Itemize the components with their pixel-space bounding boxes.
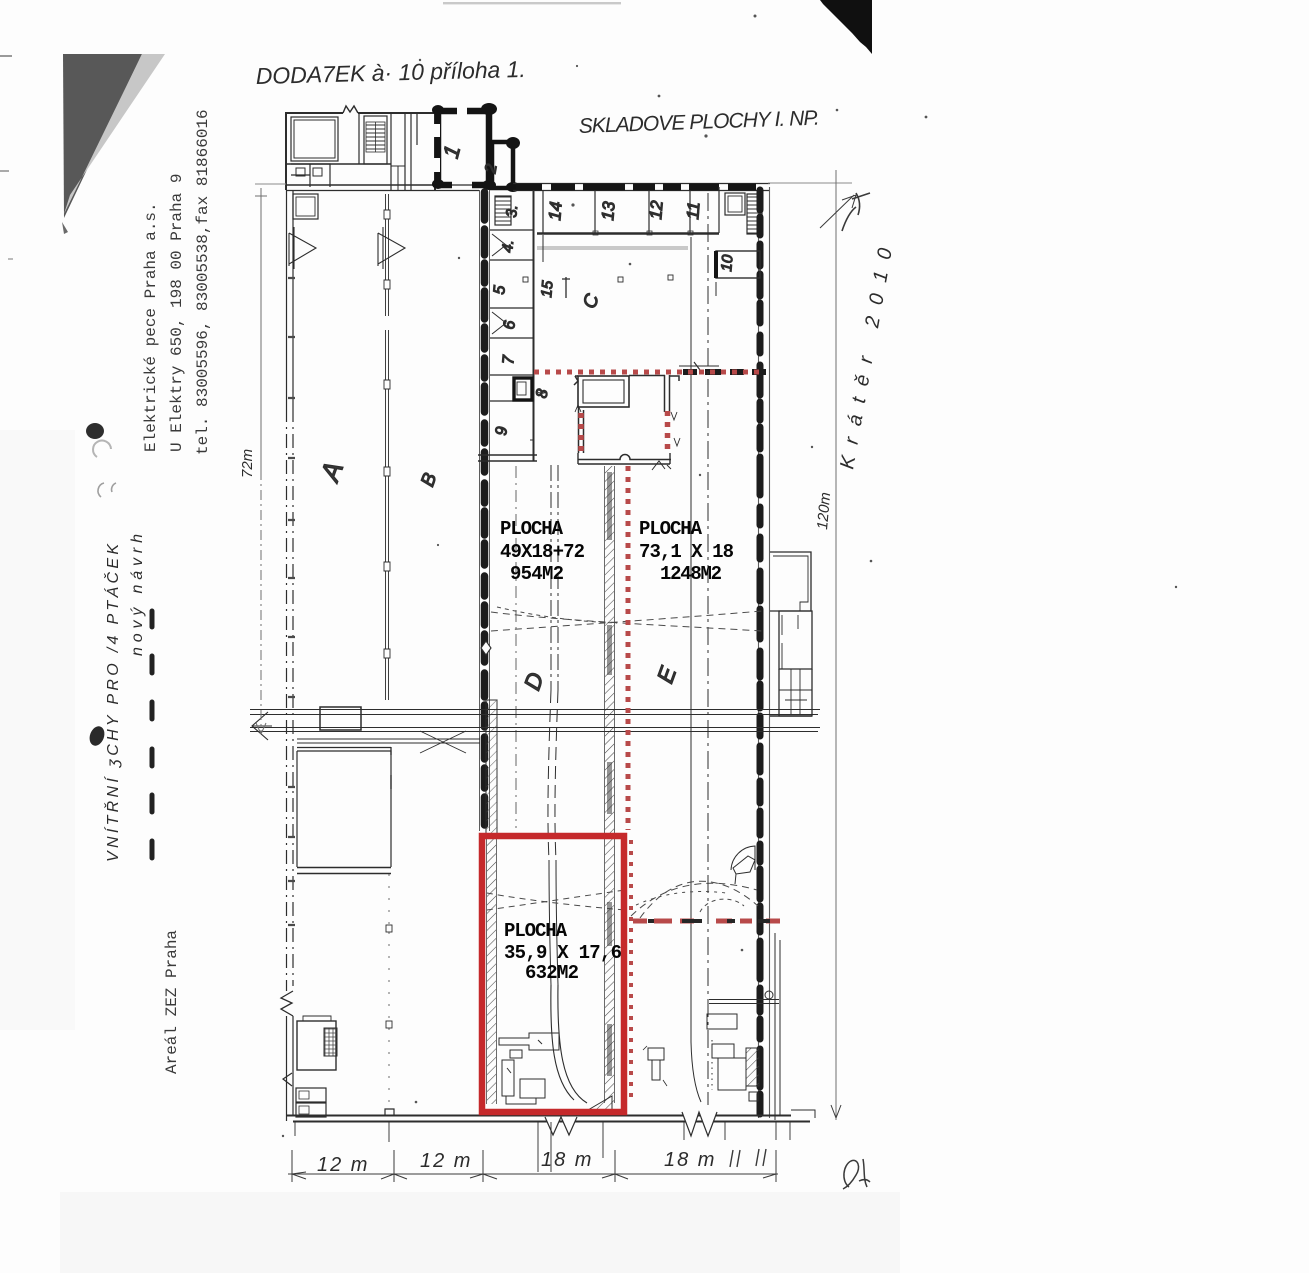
svg-text:U Elektry 650, 198 00 Praha 9: U Elektry 650, 198 00 Praha 9 bbox=[168, 174, 186, 452]
svg-text:5: 5 bbox=[491, 285, 509, 295]
svg-text:3.: 3. bbox=[503, 204, 521, 218]
svg-text:13: 13 bbox=[598, 200, 619, 221]
svg-text:120m: 120m bbox=[814, 491, 834, 530]
svg-text:tel. 83005596, 83005538,fax 81: tel. 83005596, 83005538,fax 81866016 bbox=[194, 109, 212, 455]
svg-text:14: 14 bbox=[545, 201, 566, 222]
svg-text:Elektrické pece Praha a.s.: Elektrické pece Praha a.s. bbox=[142, 202, 160, 452]
svg-text:73,1 X 18: 73,1 X 18 bbox=[639, 541, 734, 563]
svg-text:11: 11 bbox=[683, 201, 703, 220]
svg-text:15: 15 bbox=[538, 279, 556, 298]
svg-text:35,9 X 17,6: 35,9 X 17,6 bbox=[504, 942, 622, 964]
svg-text:18 m: 18 m bbox=[664, 1149, 716, 1171]
svg-text:954M2: 954M2 bbox=[510, 563, 564, 585]
svg-text:12 m: 12 m bbox=[420, 1150, 472, 1172]
svg-text:18 m: 18 m bbox=[541, 1149, 593, 1171]
svg-text:PLOCHA: PLOCHA bbox=[500, 518, 564, 540]
svg-text:1248M2: 1248M2 bbox=[660, 563, 722, 585]
svg-text:49X18+72: 49X18+72 bbox=[500, 541, 585, 563]
svg-text:PLOCHA: PLOCHA bbox=[639, 518, 703, 540]
svg-text:12 m: 12 m bbox=[317, 1154, 369, 1176]
svg-text:72m: 72m bbox=[239, 449, 256, 478]
svg-text:10: 10 bbox=[718, 253, 736, 272]
svg-text:Areál ZEZ Praha: Areál ZEZ Praha bbox=[163, 930, 181, 1074]
svg-text:632M2: 632M2 bbox=[525, 962, 579, 984]
svg-text:12: 12 bbox=[646, 199, 667, 220]
svg-text:9: 9 bbox=[493, 426, 511, 436]
svg-text:PLOCHA: PLOCHA bbox=[504, 920, 568, 942]
